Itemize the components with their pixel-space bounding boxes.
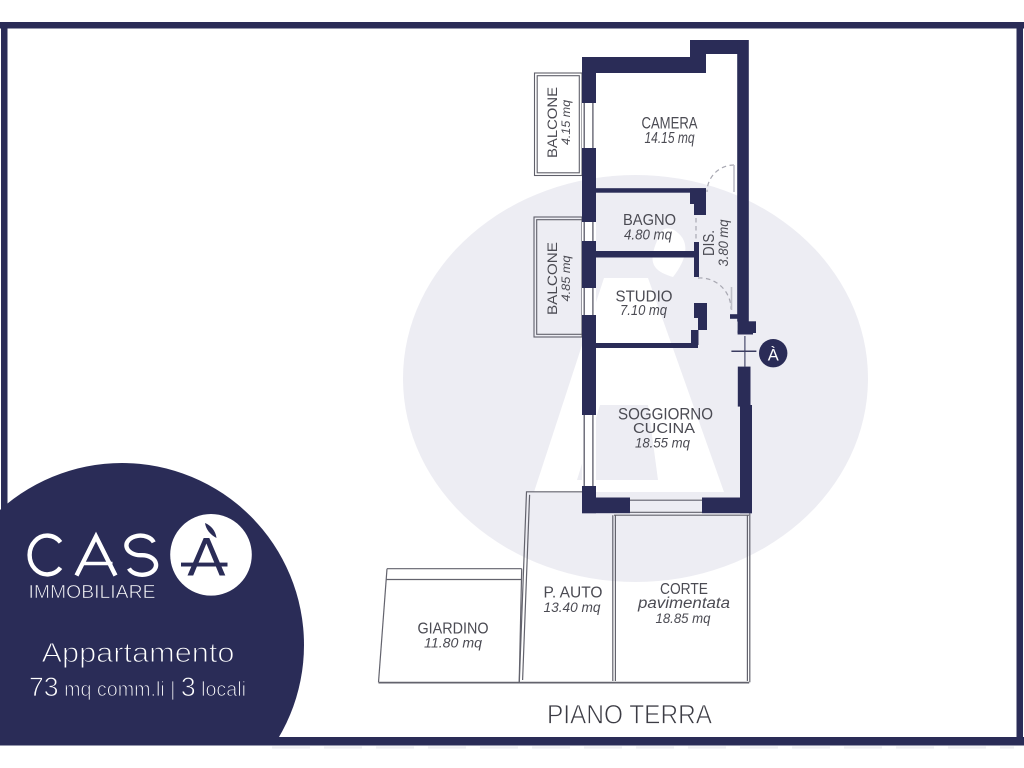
svg-text:Appartamento: Appartamento [42,637,235,668]
svg-text:13.40 mq: 13.40 mq [544,599,601,615]
svg-text:PIANO TERRA: PIANO TERRA [547,700,712,730]
svg-text:11.80 mq: 11.80 mq [424,636,483,651]
svg-text:À: À [768,345,779,364]
svg-text:IMMOBILIARE: IMMOBILIARE [29,582,156,602]
svg-text:3.80 mq: 3.80 mq [716,219,731,266]
svg-text:4.80 mq: 4.80 mq [624,227,673,244]
svg-text:BALCONE: BALCONE [545,242,560,315]
svg-text:4.15 mq: 4.15 mq [559,100,573,145]
svg-text:14.15 mq: 14.15 mq [645,130,695,147]
svg-text:18.85 mq: 18.85 mq [656,610,711,626]
svg-text:BALCONE: BALCONE [545,87,560,158]
svg-text:18.55 mq: 18.55 mq [635,435,690,451]
svg-text:7.10 mq: 7.10 mq [620,303,667,319]
svg-text:4.85 mq: 4.85 mq [559,255,573,301]
